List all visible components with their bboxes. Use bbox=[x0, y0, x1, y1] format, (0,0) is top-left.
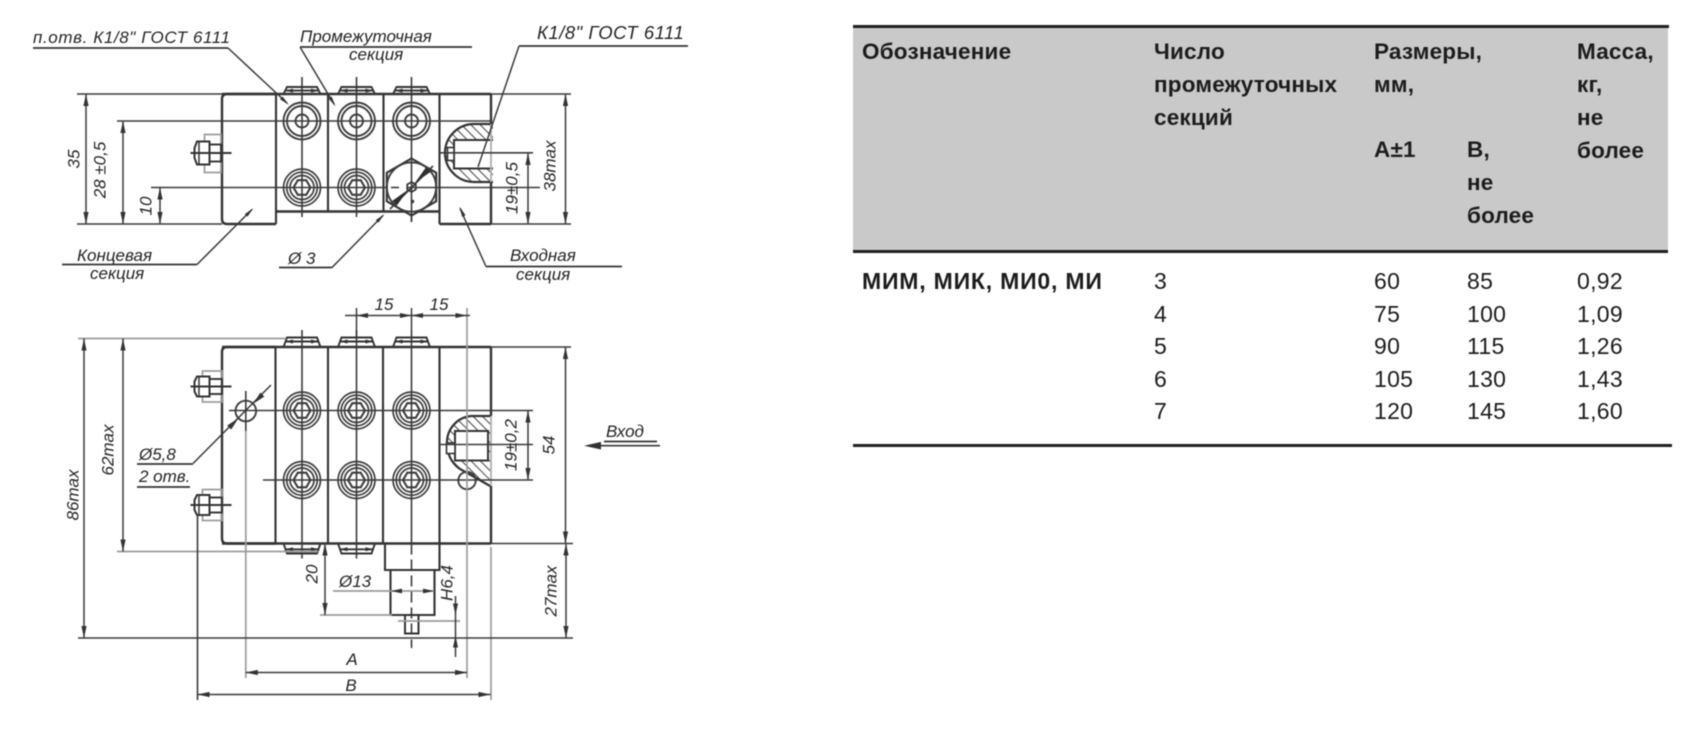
svg-text:35: 35 bbox=[65, 149, 84, 168]
svg-text:Вход: Вход bbox=[606, 422, 644, 441]
svg-text:2 отв.: 2 отв. bbox=[138, 467, 190, 486]
svg-text:28 ±0,5: 28 ±0,5 bbox=[91, 141, 110, 199]
svg-text:27max: 27max bbox=[542, 565, 561, 618]
svg-text:54: 54 bbox=[540, 436, 559, 455]
svg-text:38max: 38max bbox=[541, 140, 560, 192]
svg-text:62max: 62max bbox=[99, 424, 118, 476]
svg-text:Концевая: Концевая bbox=[77, 246, 152, 265]
svg-text:19±0,5: 19±0,5 bbox=[503, 162, 522, 214]
svg-text:Н6,4: Н6,4 bbox=[438, 565, 457, 601]
svg-text:20: 20 bbox=[303, 564, 322, 584]
svg-text:86max: 86max bbox=[64, 469, 83, 521]
svg-text:Входная: Входная bbox=[510, 246, 576, 265]
svg-text:15: 15 bbox=[430, 295, 449, 314]
svg-text:Ø5,8: Ø5,8 bbox=[138, 445, 176, 464]
svg-text:Промежуточная: Промежуточная bbox=[300, 27, 432, 46]
svg-text:10: 10 bbox=[137, 196, 156, 215]
svg-text:А: А bbox=[345, 650, 357, 669]
svg-text:Ø 3: Ø 3 bbox=[287, 249, 316, 268]
svg-text:Ø13: Ø13 bbox=[338, 572, 372, 591]
svg-text:секция: секция bbox=[516, 265, 570, 284]
svg-text:19±0,2: 19±0,2 bbox=[502, 419, 521, 471]
svg-text:п.отв. К1/8" ГОСТ 6111: п.отв. К1/8" ГОСТ 6111 bbox=[33, 28, 231, 47]
svg-text:секция: секция bbox=[90, 264, 144, 283]
svg-text:15: 15 bbox=[375, 295, 394, 314]
svg-text:К1/8" ГОСТ 6111: К1/8" ГОСТ 6111 bbox=[537, 22, 684, 43]
svg-text:В: В bbox=[345, 676, 356, 695]
